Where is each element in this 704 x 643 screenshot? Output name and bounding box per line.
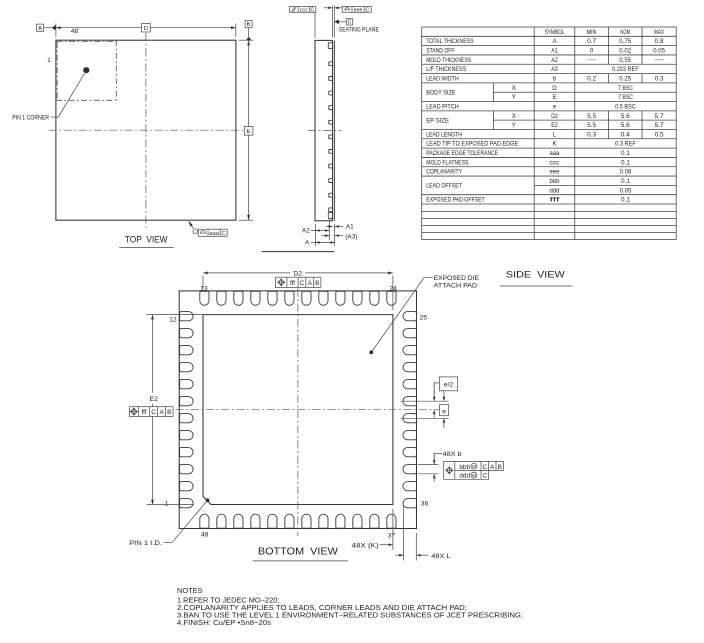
svg-text:C: C <box>221 231 226 237</box>
svg-text:Y: Y <box>512 94 516 101</box>
svg-text:1: 1 <box>165 501 169 508</box>
svg-text:LEAD TIP TO EXPOSED PAD EDGE: LEAD TIP TO EXPOSED PAD EDGE <box>426 141 518 148</box>
svg-text:A1: A1 <box>346 224 354 231</box>
svg-text:0.4: 0.4 <box>621 131 631 138</box>
svg-text:ccc: ccc <box>300 8 308 14</box>
svg-text:D2: D2 <box>551 113 558 120</box>
svg-text:MOLD THICKNESS: MOLD THICKNESS <box>426 57 471 64</box>
svg-text:0.55: 0.55 <box>619 57 631 64</box>
svg-text:e/2: e/2 <box>444 381 454 388</box>
svg-text:0.3: 0.3 <box>655 75 665 82</box>
svg-text:0.1: 0.1 <box>621 159 631 166</box>
svg-text:C: C <box>365 8 369 14</box>
svg-text:5.7: 5.7 <box>655 113 665 120</box>
svg-text:A: A <box>38 26 42 32</box>
svg-text:5.7: 5.7 <box>655 122 665 129</box>
svg-text:D: D <box>552 85 557 92</box>
svg-text:0.5: 0.5 <box>655 131 665 138</box>
svg-text:SYMBOL: SYMBOL <box>545 29 565 36</box>
svg-text:B: B <box>167 409 171 416</box>
svg-text:e: e <box>442 408 446 415</box>
svg-text:4.FINISH: Cu/EP •Sn8~20s: 4.FINISH: Cu/EP •Sn8~20s <box>177 620 272 627</box>
svg-text:C: C <box>310 8 314 14</box>
svg-text:A: A <box>159 409 164 416</box>
svg-text:B: B <box>247 22 251 28</box>
svg-text:LEAD OFFSET: LEAD OFFSET <box>426 183 462 190</box>
svg-text:0.75: 0.75 <box>619 38 631 45</box>
svg-text:24: 24 <box>389 285 397 292</box>
svg-text:13: 13 <box>200 285 208 292</box>
svg-text:COPLANARITY: COPLANARITY <box>426 169 462 176</box>
svg-text:7 BSC: 7 BSC <box>618 94 633 101</box>
svg-text:0.8: 0.8 <box>655 38 665 45</box>
svg-text:C: C <box>348 20 352 26</box>
svg-text:eee: eee <box>550 169 560 176</box>
svg-text:fff: fff <box>290 280 295 287</box>
svg-text:bbb: bbb <box>459 464 470 471</box>
svg-text:STAND OFF: STAND OFF <box>426 48 455 55</box>
svg-text:ATTACH PAD: ATTACH PAD <box>434 282 478 289</box>
svg-text:TOTAL THICKNESS: TOTAL THICKNESS <box>426 38 474 45</box>
svg-text:X: X <box>512 113 516 120</box>
svg-text:0.3: 0.3 <box>587 131 597 138</box>
svg-text:2.COPLANARITY APPLIES TO LEADS: 2.COPLANARITY APPLIES TO LEADS, CORNER L… <box>177 605 467 612</box>
svg-text:A: A <box>308 280 313 287</box>
svg-text:3.BAN TO USE THE LEVEL 1 ENVIR: 3.BAN TO USE THE LEVEL 1 ENVIRONMENT−REL… <box>177 613 523 620</box>
svg-text:0.1: 0.1 <box>621 197 631 204</box>
svg-text:B: B <box>498 464 502 471</box>
svg-text:M: M <box>472 464 476 469</box>
svg-text:aaa: aaa <box>550 150 560 157</box>
svg-text:aaa: aaa <box>209 231 220 237</box>
svg-text:ddd: ddd <box>459 473 470 480</box>
svg-text:LEAD PITCH: LEAD PITCH <box>426 103 459 110</box>
svg-text:5.5: 5.5 <box>587 122 597 129</box>
svg-text:D: D <box>144 26 148 32</box>
svg-text:5.5: 5.5 <box>587 113 597 120</box>
svg-text:E2: E2 <box>551 122 558 129</box>
svg-text:C: C <box>151 409 156 416</box>
svg-text:−−−: −−− <box>655 57 664 64</box>
svg-text:1.REFER TO JEDEC MO−220;: 1.REFER TO JEDEC MO−220; <box>177 598 279 605</box>
svg-text:C: C <box>482 464 487 471</box>
svg-text:5.6: 5.6 <box>621 122 631 129</box>
svg-text:A3: A3 <box>551 66 558 73</box>
svg-text:5.6: 5.6 <box>621 113 631 120</box>
svg-text:0.05: 0.05 <box>620 187 632 194</box>
svg-text:48X L: 48X L <box>431 553 450 560</box>
svg-text:0.203 REF: 0.203 REF <box>612 66 639 73</box>
svg-text:M: M <box>472 473 476 478</box>
svg-text:fff: fff <box>550 197 561 204</box>
svg-text:0.5 BSC: 0.5 BSC <box>615 103 636 110</box>
svg-text:NOTES: NOTES <box>177 588 203 595</box>
svg-text:LEAD WIDTH: LEAD WIDTH <box>426 75 459 82</box>
svg-text:0.02: 0.02 <box>619 48 631 55</box>
svg-text:−−−: −−− <box>587 57 596 64</box>
svg-text:C: C <box>482 473 487 480</box>
svg-text:0.7: 0.7 <box>587 38 597 45</box>
svg-text:PACKAGE EDGE TOLERANCE: PACKAGE EDGE TOLERANCE <box>426 150 498 157</box>
svg-text:E2: E2 <box>150 396 159 403</box>
svg-text:A: A <box>490 464 495 471</box>
svg-text:TOP VIEW: TOP VIEW <box>125 235 168 245</box>
svg-text:36: 36 <box>421 501 429 508</box>
svg-text:SEATING PLANE: SEATING PLANE <box>339 27 379 33</box>
svg-text:bbb: bbb <box>550 178 560 185</box>
svg-text:PIN 1 I.D.: PIN 1 I.D. <box>129 541 162 547</box>
svg-text:48: 48 <box>71 28 79 35</box>
svg-text:E: E <box>247 129 251 135</box>
svg-text:LEAD LENGTH: LEAD LENGTH <box>426 131 462 138</box>
svg-text:A1: A1 <box>551 48 558 55</box>
svg-text:0.05: 0.05 <box>653 48 665 55</box>
svg-text:eee: eee <box>354 8 363 14</box>
svg-text:0.3 REF: 0.3 REF <box>615 141 636 148</box>
svg-text:K: K <box>552 141 556 148</box>
svg-text:D2: D2 <box>293 271 302 278</box>
svg-text:(A3): (A3) <box>345 233 357 240</box>
svg-text:BOTTOM VIEW: BOTTOM VIEW <box>258 547 338 558</box>
svg-text:BODY SIZE: BODY SIZE <box>426 89 455 96</box>
svg-text:PIN 1 CORNER: PIN 1 CORNER <box>12 116 49 122</box>
svg-text:Y: Y <box>512 122 516 129</box>
svg-text:48X (K): 48X (K) <box>352 542 379 549</box>
svg-text:0.25: 0.25 <box>619 75 631 82</box>
svg-text:fff: fff <box>141 409 146 416</box>
svg-text:0.1: 0.1 <box>621 150 631 157</box>
svg-text:SIDE VIEW: SIDE VIEW <box>506 270 565 281</box>
svg-text:X: X <box>512 85 516 92</box>
svg-text:25: 25 <box>420 315 428 322</box>
svg-text:C: C <box>300 280 305 287</box>
svg-text:ccc: ccc <box>550 159 560 166</box>
svg-text:37: 37 <box>388 532 396 539</box>
svg-text:B: B <box>315 280 319 287</box>
svg-text:NOM: NOM <box>620 29 630 36</box>
svg-text:EP SIZE: EP SIZE <box>426 117 449 124</box>
svg-text:ddd: ddd <box>550 187 560 194</box>
svg-text:A2: A2 <box>302 228 310 235</box>
svg-text:E: E <box>552 94 556 101</box>
svg-text:MOLD FLATNESS: MOLD FLATNESS <box>426 159 468 166</box>
svg-text:MIN: MIN <box>587 29 597 36</box>
svg-text:L/F THICKNESS: L/F THICKNESS <box>426 66 466 73</box>
svg-text:0.08: 0.08 <box>620 169 632 176</box>
svg-text:EXPOSED DIE: EXPOSED DIE <box>434 275 479 282</box>
svg-text:48: 48 <box>201 532 209 539</box>
svg-text:0.2: 0.2 <box>587 75 597 82</box>
svg-text:7 BSC: 7 BSC <box>618 85 633 92</box>
svg-text:12: 12 <box>169 316 177 323</box>
svg-text:1: 1 <box>47 57 51 64</box>
svg-text:48X b: 48X b <box>443 451 462 458</box>
svg-text:A2: A2 <box>551 57 558 64</box>
svg-text:A: A <box>305 240 310 247</box>
svg-text:EXPOSED PAD OFFSET: EXPOSED PAD OFFSET <box>426 197 485 204</box>
svg-text:0.1: 0.1 <box>621 178 631 185</box>
svg-text:MAX: MAX <box>654 29 664 36</box>
